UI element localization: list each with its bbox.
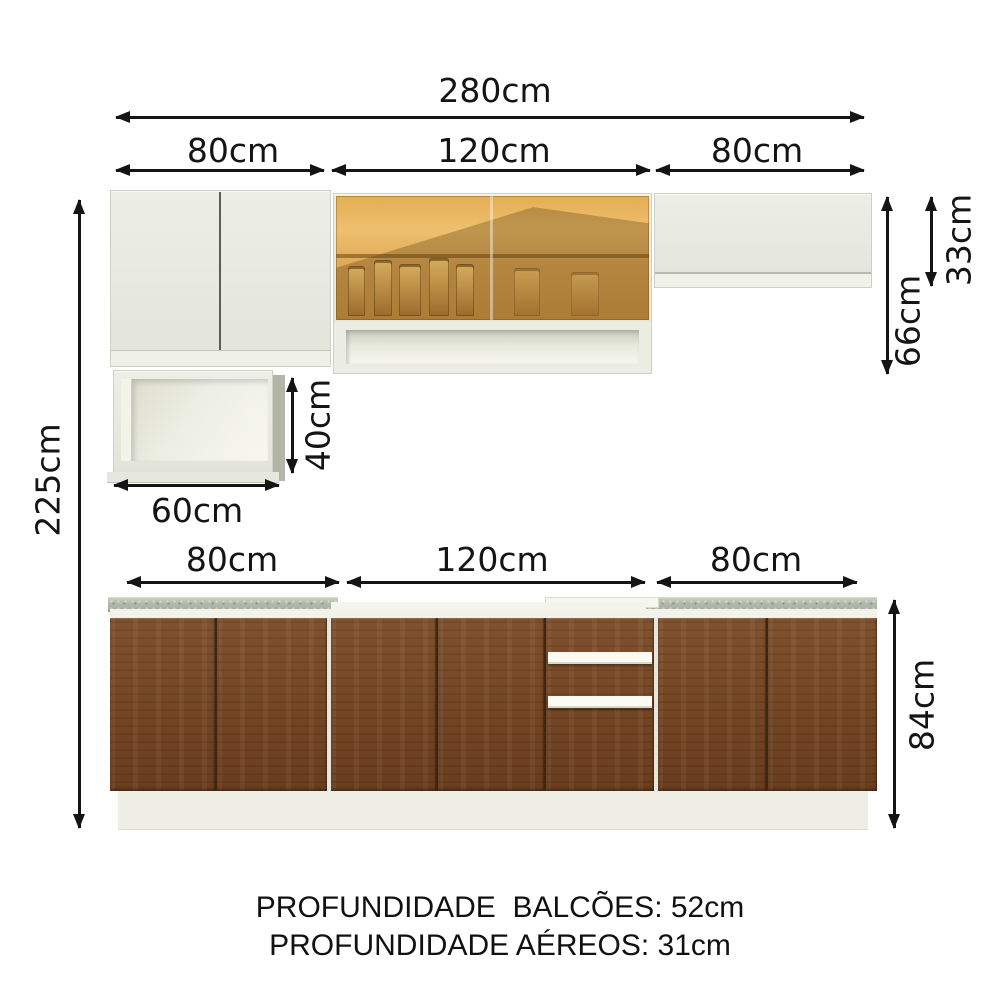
dim-label-niche-width: 60cm xyxy=(137,494,257,527)
dim-label-upper-right-width: 80cm xyxy=(697,134,817,167)
base-door xyxy=(768,618,877,791)
base-plinth xyxy=(118,791,868,830)
dim-arrow-lower-middle-width xyxy=(347,581,645,584)
dim-arrow-niche-width xyxy=(114,484,279,487)
dim-arrow-lower-left-width xyxy=(127,581,339,584)
base-door xyxy=(658,618,766,791)
jar-silhouette xyxy=(571,272,599,316)
drawer-handle xyxy=(548,652,652,664)
jar-silhouette xyxy=(429,258,449,316)
dim-label-lower-middle-width: 120cm xyxy=(422,543,562,576)
jar-silhouette xyxy=(374,260,392,316)
upper-glass-cabinet xyxy=(333,193,652,374)
open-shelf-base xyxy=(107,472,279,483)
dim-arrow-lower-right-width xyxy=(657,581,857,584)
dim-arrow-upper-left-width xyxy=(116,169,324,172)
upper-right-cabinet xyxy=(654,193,872,288)
dim-label-base-height: 84cm xyxy=(906,659,939,751)
dim-label-niche-height: 40cm xyxy=(302,379,335,471)
dim-arrow-total-width xyxy=(116,116,864,119)
dim-arrow-upper-middle-width xyxy=(332,169,650,172)
open-shelf-side-panel xyxy=(273,375,285,481)
dim-label-upper-height-66: 66cm xyxy=(892,275,925,367)
glass-door-divider xyxy=(490,196,493,320)
base-door xyxy=(217,618,327,791)
base-door xyxy=(110,618,215,791)
dim-arrow-niche-height xyxy=(291,378,294,473)
base-door xyxy=(438,618,544,791)
upper-left-bottom-strip xyxy=(111,350,330,366)
drawer-handle xyxy=(548,696,652,708)
dim-arrow-upper-height-33 xyxy=(930,197,933,286)
upper-left-door-gap xyxy=(219,192,221,350)
niche-recess xyxy=(346,330,639,364)
dim-label-total-height: 225cm xyxy=(32,423,65,536)
footer-depth-balcoes: PROFUNDIDADE BALCÕES: 52cm xyxy=(0,893,1000,923)
glass-panel xyxy=(336,196,649,320)
dim-label-total-width: 280cm xyxy=(395,74,595,107)
dim-label-upper-middle-width: 120cm xyxy=(424,134,564,167)
jar-silhouette xyxy=(399,264,421,316)
jar-silhouette xyxy=(456,264,474,316)
open-shelf-recess xyxy=(131,379,268,461)
open-shelf-left-wall xyxy=(121,379,132,461)
dim-arrow-total-height xyxy=(78,200,81,828)
footer-depth-aereos: PROFUNDIDADE AÉREOS: 31cm xyxy=(0,931,1000,961)
dim-label-upper-height-33: 33cm xyxy=(943,194,976,286)
base-door xyxy=(331,618,436,791)
dim-label-lower-left-width: 80cm xyxy=(172,543,292,576)
dim-arrow-base-height xyxy=(893,600,896,828)
open-shelf-unit xyxy=(113,370,273,473)
upper-left-cabinet xyxy=(110,190,331,367)
kitchen-dimension-diagram: 280cm 80cm 120cm 80cm 225cm xyxy=(0,0,1000,1000)
jar-silhouette xyxy=(348,266,365,316)
dim-arrow-upper-right-width xyxy=(656,169,864,172)
dim-label-upper-left-width: 80cm xyxy=(173,134,293,167)
upper-right-bottom-strip xyxy=(655,274,871,287)
base-cabinet-body xyxy=(110,618,877,791)
jar-silhouette xyxy=(514,268,540,316)
glass-cabinet-open-niche xyxy=(334,322,651,373)
drawer-stack xyxy=(546,618,654,791)
dim-label-lower-right-width: 80cm xyxy=(696,543,816,576)
